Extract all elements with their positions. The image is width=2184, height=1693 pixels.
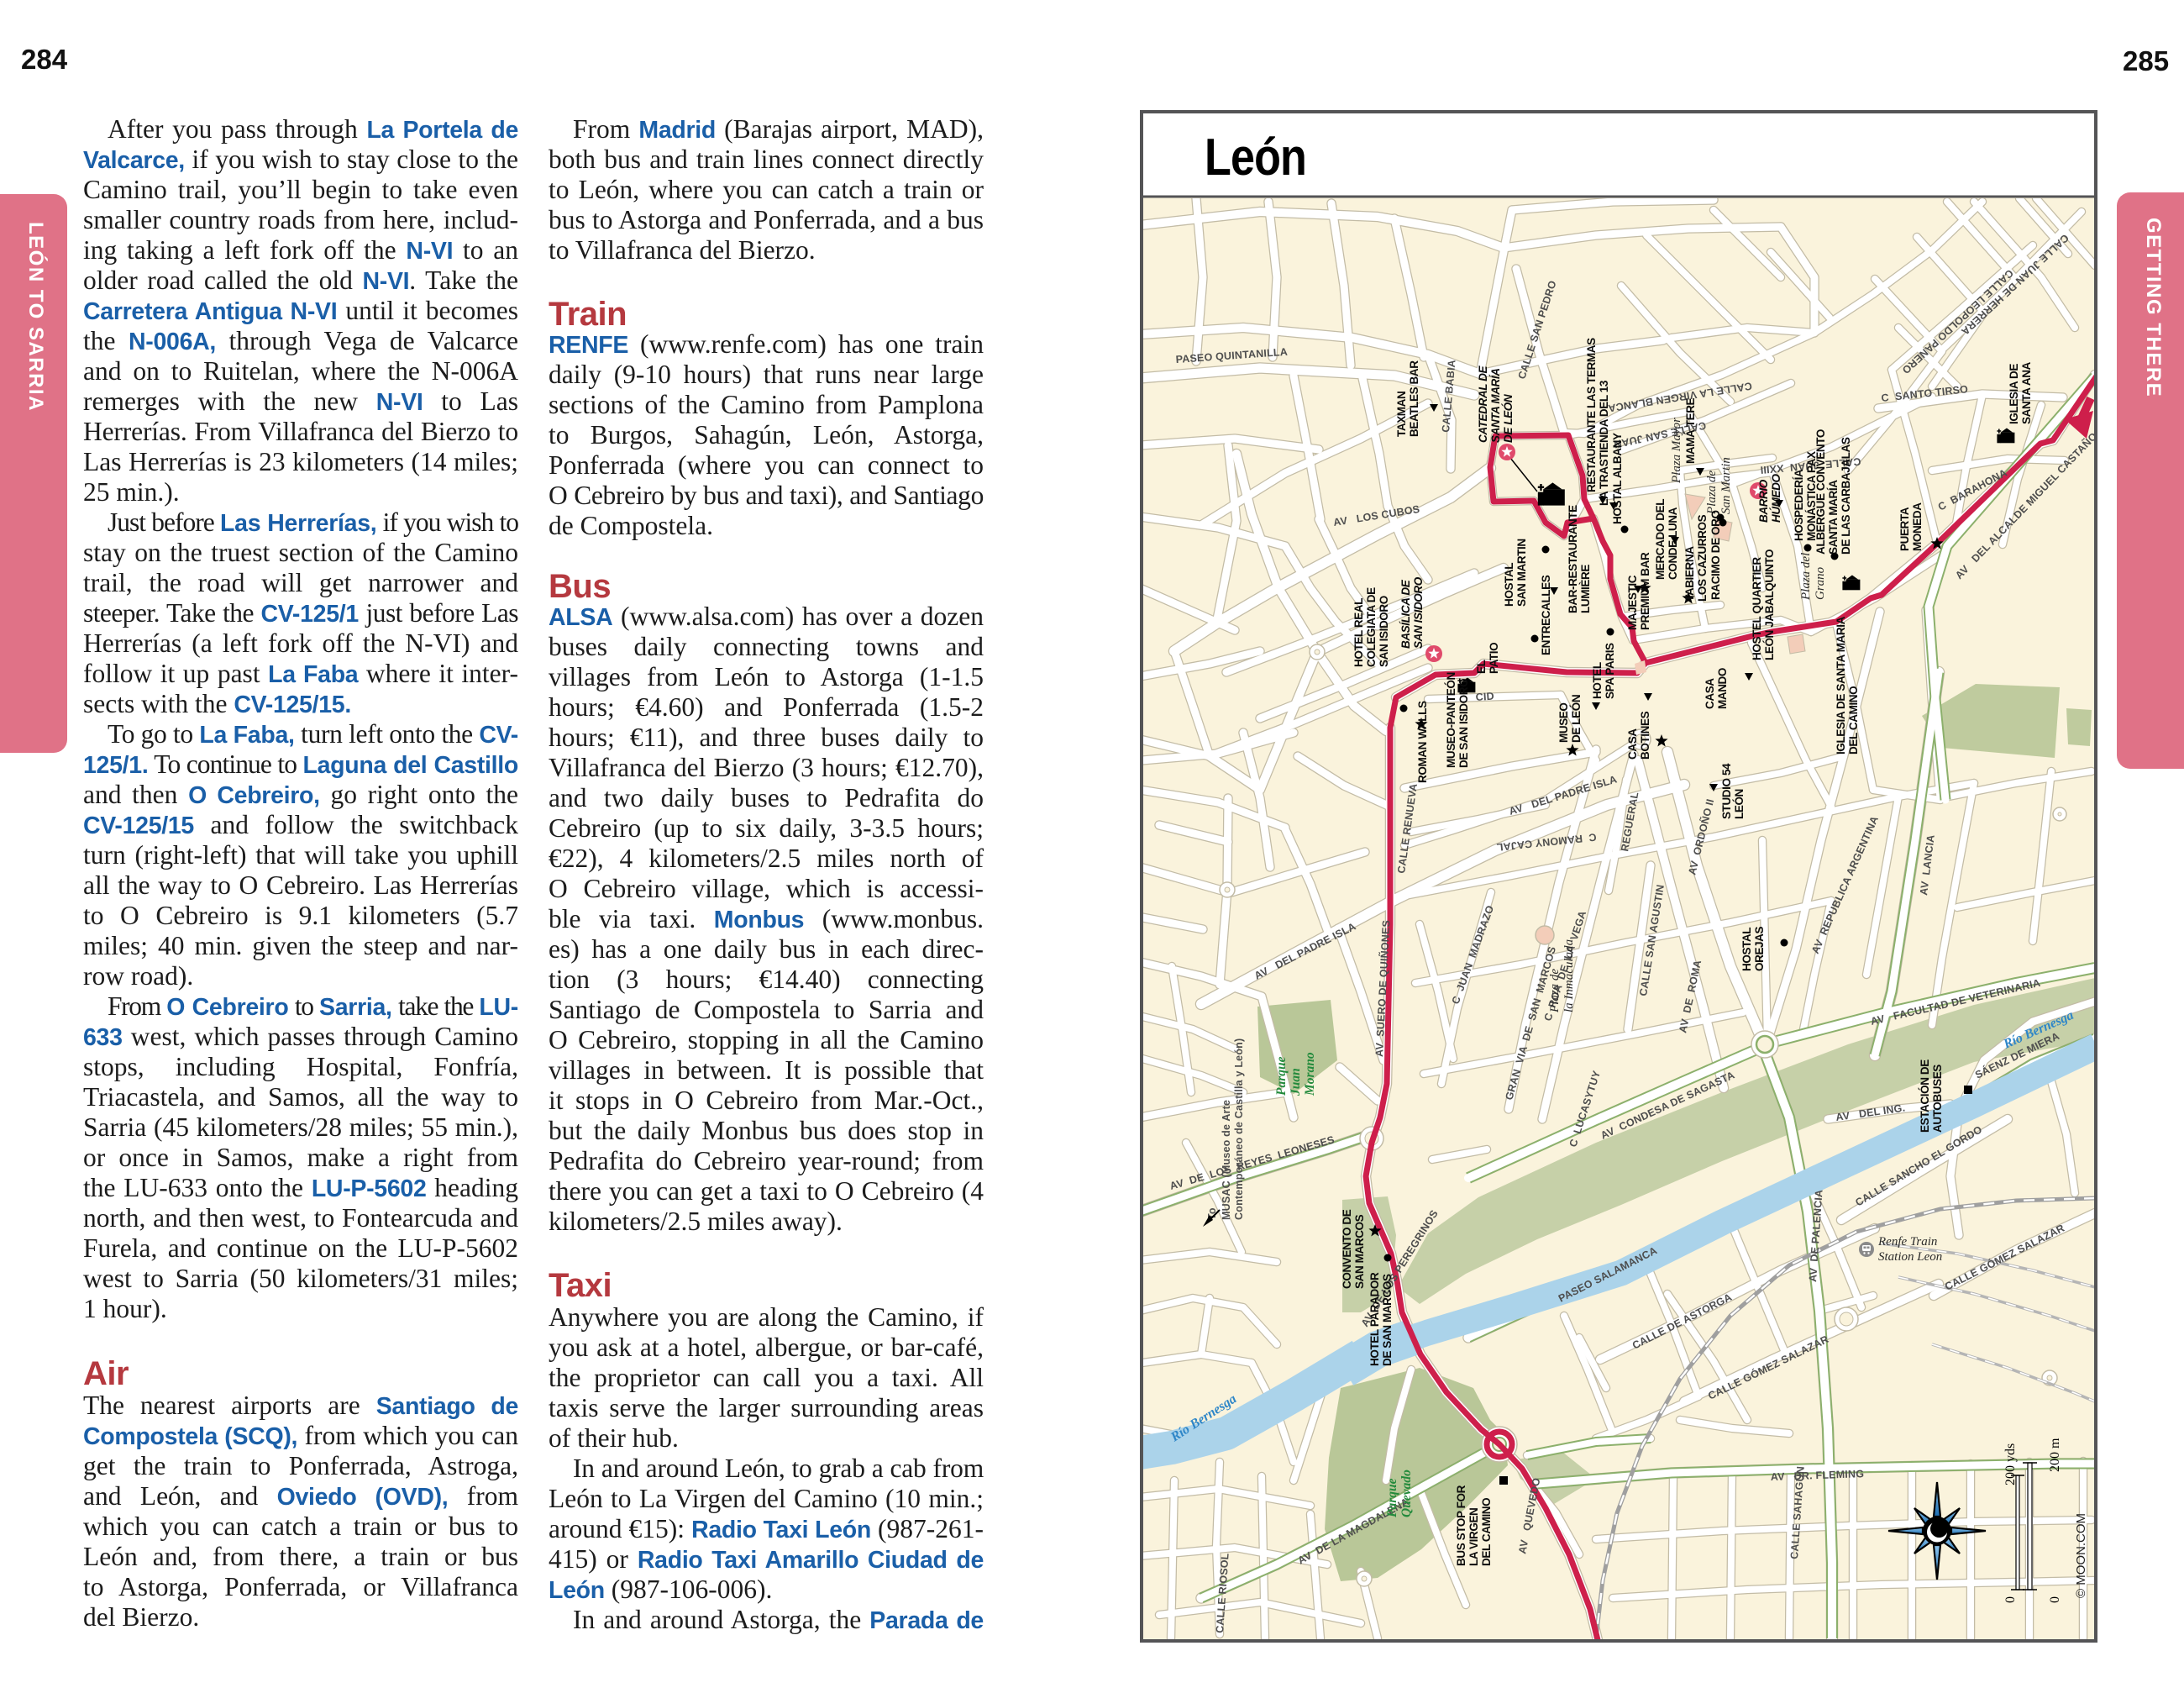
svg-text:LOS CAZURROS: LOS CAZURROS — [1696, 514, 1709, 602]
svg-text:Juan: Juan — [1289, 1068, 1303, 1096]
svg-text:MANDO: MANDO — [1716, 668, 1729, 709]
svg-text:Quevado: Quevado — [1399, 1470, 1414, 1517]
svg-text:SAN ISIDORO: SAN ISIDORO — [1378, 596, 1390, 667]
svg-text:HOTEL PARADOR: HOTEL PARADOR — [1368, 1272, 1381, 1366]
svg-text:ROMAN WALLS: ROMAN WALLS — [1416, 701, 1429, 783]
svg-text:DE LAS CARBAJALAS: DE LAS CARBAJALAS — [1840, 437, 1852, 555]
svg-text:DE SAN ISIDORO: DE SAN ISIDORO — [1457, 679, 1470, 768]
svg-text:ESTACIÓN DE: ESTACIÓN DE — [1919, 1059, 1931, 1133]
svg-text:DE LEÓN: DE LEÓN — [1570, 695, 1583, 743]
svg-text:SAN MARCOS: SAN MARCOS — [1353, 1214, 1366, 1289]
svg-text:IGLESIA DE SANTA MARIA: IGLESIA DE SANTA MARIA — [1835, 616, 1847, 754]
svg-text:CONVENTO DE: CONVENTO DE — [1341, 1209, 1353, 1289]
svg-text:Plaza de: Plaza de — [1705, 471, 1719, 515]
svg-text:la Inmaculada: la Inmaculada — [1562, 939, 1576, 1012]
svg-text:Station Leon: Station Leon — [1878, 1250, 1942, 1264]
svg-text:DE LEÓN: DE LEÓN — [1502, 394, 1515, 443]
svg-text:MERCADO DEL: MERCADO DEL — [1654, 499, 1667, 580]
svg-text:ENTRECALLES: ENTRECALLES — [1540, 575, 1552, 655]
svg-text:San Martin: San Martin — [1719, 457, 1733, 514]
svg-text:CASA: CASA — [1626, 728, 1639, 760]
svg-text:LEÓN JABALQUINTO: LEÓN JABALQUINTO — [1763, 549, 1776, 660]
svg-text:COLEGIATA DE: COLEGIATA DE — [1365, 587, 1378, 667]
svg-text:Morano: Morano — [1303, 1052, 1317, 1096]
svg-text:SANTA ANA: SANTA ANA — [2020, 361, 2033, 424]
svg-text:HOSPEDERÍA: HOSPEDERÍA — [1793, 469, 1805, 541]
svg-text:MAMÁ TERE: MAMÁ TERE — [1684, 397, 1697, 464]
svg-text:RACIMO DE ORO: RACIMO DE ORO — [1709, 510, 1722, 600]
svg-text:BASÍLICA DE: BASÍLICA DE — [1399, 579, 1412, 649]
svg-text:SAN MARTIN: SAN MARTIN — [1515, 539, 1528, 607]
svg-text:MAJESTIC: MAJESTIC — [1626, 575, 1639, 630]
svg-text:HOTEL REAL: HOTEL REAL — [1352, 598, 1365, 667]
svg-text:0: 0 — [2048, 1596, 2062, 1603]
svg-text:CID: CID — [1475, 690, 1494, 703]
svg-text:HOSTAL: HOSTAL — [1740, 928, 1753, 971]
svg-text:PATIO: PATIO — [1488, 643, 1500, 674]
svg-text:© MOON.COM: © MOON.COM — [2074, 1513, 2088, 1598]
svg-text:RESTAURANTE LAS TERMAS: RESTAURANTE LAS TERMAS — [1585, 338, 1598, 492]
svg-text:Plaza de: Plaza de — [1548, 969, 1562, 1013]
svg-text:Parque: Parque — [1274, 1056, 1289, 1096]
svg-text:LA TRASTIENDA DEL 13: LA TRASTIENDA DEL 13 — [1598, 380, 1610, 506]
svg-text:BEATLES BAR: BEATLES BAR — [1408, 360, 1420, 437]
svg-text:DEL CAMINO: DEL CAMINO — [1847, 686, 1860, 754]
svg-text:MUSAC (Museo de Arte: MUSAC (Museo de Arte — [1221, 1100, 1232, 1220]
svg-text:ALBERGUE CONVENTO: ALBERGUE CONVENTO — [1814, 429, 1827, 555]
svg-text:CASA: CASA — [1704, 678, 1716, 709]
svg-text:BARRIO: BARRIO — [1757, 479, 1770, 523]
svg-text:CATEDRAL DE: CATEDRAL DE — [1477, 365, 1489, 443]
svg-text:HOSTEL QUARTIER: HOSTEL QUARTIER — [1751, 557, 1763, 660]
svg-text:Parque: Parque — [1385, 1478, 1399, 1517]
svg-text:MUSEO: MUSEO — [1557, 702, 1570, 743]
svg-text:LA VIRGEN: LA VIRGEN — [1467, 1508, 1480, 1566]
svg-text:BAR-RESTAURANTE: BAR-RESTAURANTE — [1567, 505, 1579, 613]
svg-text:SPA PARIS: SPA PARIS — [1604, 643, 1616, 699]
svg-text:HOSTAL ALBANY: HOSTAL ALBANY — [1611, 433, 1624, 524]
svg-text:200 m: 200 m — [2048, 1438, 2062, 1472]
svg-text:STUDIO 54: STUDIO 54 — [1720, 763, 1733, 819]
svg-text:Renfe Train: Renfe Train — [1877, 1235, 1937, 1249]
svg-text:DE SAN MARCOS: DE SAN MARCOS — [1381, 1274, 1394, 1366]
svg-text:León: León — [1205, 129, 1306, 187]
svg-text:LUMIÈRE: LUMIÈRE — [1579, 565, 1592, 613]
svg-text:HOSTAL: HOSTAL — [1503, 563, 1515, 607]
svg-text:LEÓN: LEÓN — [1733, 789, 1746, 819]
svg-text:MONEDA: MONEDA — [1911, 502, 1924, 551]
svg-text:BUS STOP FOR: BUS STOP FOR — [1455, 1485, 1467, 1566]
svg-text:PUERTA: PUERTA — [1898, 507, 1911, 551]
svg-text:SANTA MARÍA: SANTA MARÍA — [1827, 480, 1840, 555]
svg-text:PREMIUM BAR: PREMIUM BAR — [1639, 552, 1651, 630]
svg-text:TABIERNA: TABIERNA — [1683, 546, 1696, 602]
svg-text:SANTA MARÍA: SANTA MARÍA — [1489, 368, 1502, 443]
svg-text:SAN ISIDORO: SAN ISIDORO — [1412, 576, 1425, 649]
svg-text:CONDE LUNA: CONDE LUNA — [1667, 507, 1679, 580]
svg-text:MUSEO-PANTEÓN: MUSEO-PANTEÓN — [1445, 672, 1457, 768]
svg-text:HOTEL: HOTEL — [1591, 662, 1604, 699]
svg-text:OREJAS: OREJAS — [1753, 926, 1766, 971]
svg-text:Grano: Grano — [1814, 566, 1827, 600]
svg-text:DEL CAMINO: DEL CAMINO — [1480, 1498, 1493, 1566]
svg-text:BOTINES: BOTINES — [1639, 711, 1651, 760]
svg-text:AUTOBUSES: AUTOBUSES — [1931, 1065, 1944, 1133]
svg-text:200 yds: 200 yds — [2003, 1443, 2018, 1485]
svg-text:IGLESIA DE: IGLESIA DE — [2008, 364, 2020, 424]
svg-text:Contemporáneo de Castilla y Le: Contemporáneo de Castilla y León) — [1233, 1038, 1245, 1220]
svg-text:Plaza del: Plaza del — [1799, 553, 1813, 601]
svg-text:EL: EL — [1475, 660, 1488, 674]
svg-text:Plaza Mayor: Plaza Mayor — [1670, 418, 1683, 484]
svg-text:HÚMEDO: HÚMEDO — [1770, 474, 1782, 523]
svg-text:TAXMAN: TAXMAN — [1395, 392, 1408, 437]
svg-text:0: 0 — [2003, 1596, 2018, 1603]
